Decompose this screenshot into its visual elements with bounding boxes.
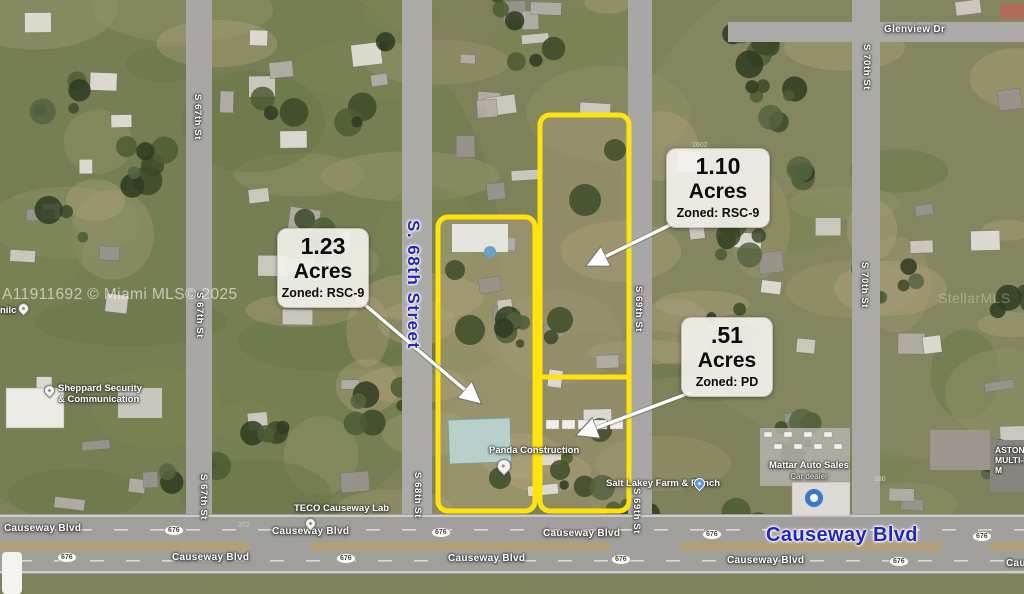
callout-acreage-value: 1.23 bbox=[281, 234, 365, 260]
parcel-overlay bbox=[0, 0, 1024, 594]
callout-zoning: Zoned: RSC-9 bbox=[281, 286, 365, 300]
callout-1-23-acres: 1.23 Acres Zoned: RSC-9 bbox=[277, 228, 369, 308]
callout-zoning: Zoned: RSC-9 bbox=[670, 206, 766, 220]
arrow-to-parcel-51 bbox=[580, 392, 692, 434]
parcel-1-10-51-acres bbox=[540, 115, 629, 511]
callout-acreage-unit: Acres bbox=[670, 180, 766, 204]
callout-zoning: Zoned: PD bbox=[685, 375, 769, 389]
callout-51-acres: .51 Acres Zoned: PD bbox=[681, 317, 773, 397]
parcel-1-23-acres bbox=[438, 217, 535, 511]
aerial-parcel-map: S 67th St S 67th St S 67th St S. 68th St… bbox=[0, 0, 1024, 594]
callout-acreage-value: .51 bbox=[685, 323, 769, 349]
street-label-causeway-major: Causeway Blvd bbox=[766, 524, 918, 547]
street-label-s68th-major: S. 68th Street bbox=[403, 220, 423, 350]
callout-acreage-value: 1.10 bbox=[670, 154, 766, 180]
callout-acreage-unit: Acres bbox=[281, 260, 365, 284]
callout-acreage-unit: Acres bbox=[685, 349, 769, 373]
parcel-outlines bbox=[438, 115, 629, 511]
callout-1-10-acres: 1.10 Acres Zoned: RSC-9 bbox=[666, 148, 770, 228]
